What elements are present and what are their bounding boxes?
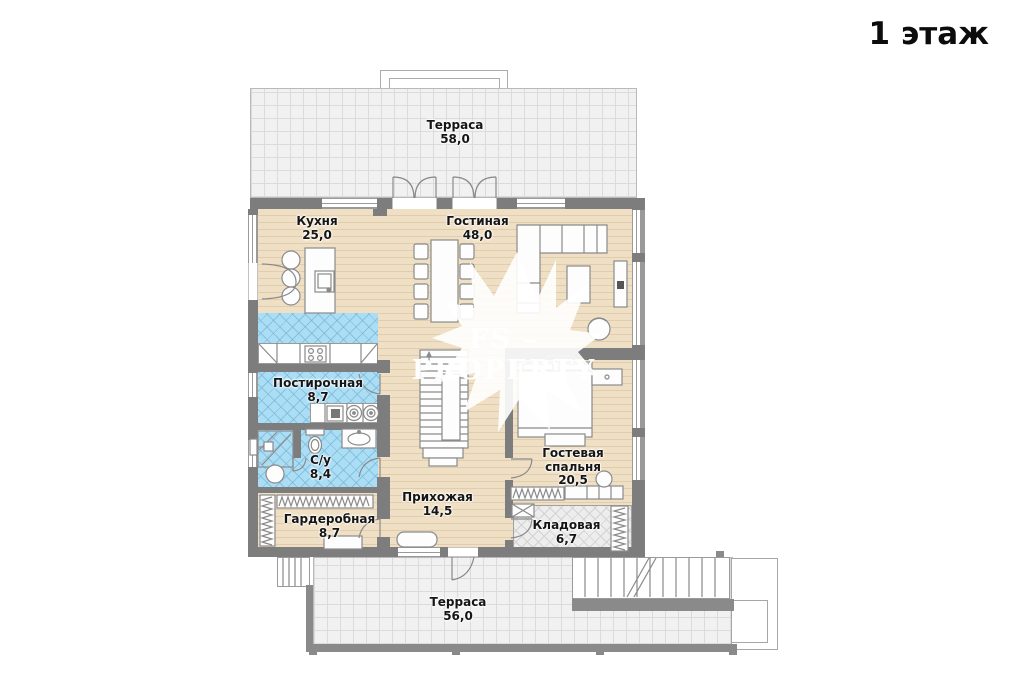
window-hallway-bottom xyxy=(398,547,440,557)
terrace-door-opening-1 xyxy=(392,198,437,209)
left-exterior-steps xyxy=(277,557,310,587)
label-laundry: Постирочная8,7 xyxy=(256,377,380,404)
entrance-door-opening xyxy=(448,547,478,557)
floor-plan: 1 этаж xyxy=(0,0,1027,685)
label-terrace-top: Терраса58,0 xyxy=(375,119,535,146)
laundry-counter xyxy=(310,403,383,423)
label-living-room: Гостиная48,0 xyxy=(425,215,530,242)
kitchen-tile-strip xyxy=(258,313,378,344)
window-bedroom-right-2 xyxy=(632,437,645,480)
window-bedroom-right-1 xyxy=(632,360,645,428)
window-kitchen-left xyxy=(248,215,258,263)
terrace-bottom-edge xyxy=(306,644,737,652)
terrace-left-edge xyxy=(306,585,313,647)
stairs-edge-bar xyxy=(572,599,734,611)
window-living-right-1 xyxy=(632,210,645,253)
terrace-door-opening-2 xyxy=(452,198,497,209)
window-living-right-2 xyxy=(632,262,645,345)
stairs-landing-inner xyxy=(731,600,768,643)
page-title: 1 этаж xyxy=(869,16,989,52)
watermark-text: FS – PROPERTY xyxy=(398,324,610,386)
label-hallway: Прихожая14,5 xyxy=(395,491,480,518)
kitchen-counter xyxy=(258,343,378,364)
label-kitchen: Кухня25,0 xyxy=(267,215,367,242)
label-storage: Кладовая6,7 xyxy=(524,519,609,546)
label-bathroom: С/у8,4 xyxy=(278,454,363,481)
label-guest-bedroom: Гостевая спальня20,5 xyxy=(531,447,615,488)
window-kitchen-top xyxy=(322,198,377,209)
terrace-top-step-inner xyxy=(389,78,500,88)
window-bathroom xyxy=(248,440,258,467)
label-wardrobe: Гардеробная8,7 xyxy=(277,513,382,540)
window-living-top xyxy=(517,198,565,209)
right-exterior-stairs xyxy=(572,557,730,599)
label-terrace-bottom: Терраса56,0 xyxy=(378,596,538,623)
kitchen-side-door-opening xyxy=(248,263,258,300)
